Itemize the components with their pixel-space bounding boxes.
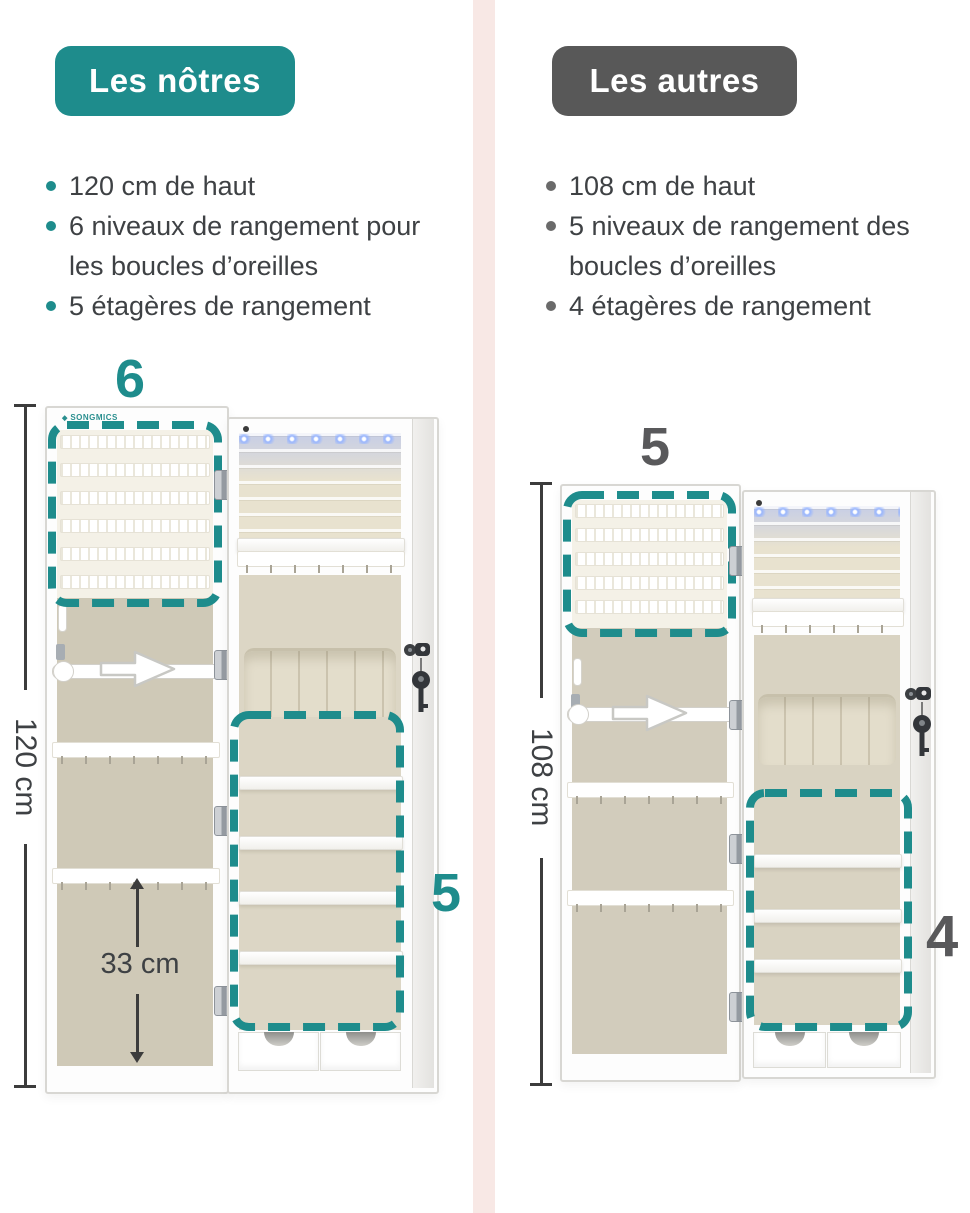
ours-inner-height-label: 33 cm <box>88 948 192 981</box>
others-badge: Les autres <box>552 46 797 116</box>
necklace-hook-bar <box>52 742 220 758</box>
storage-shelf <box>752 598 904 612</box>
hooks <box>576 904 725 912</box>
spec-text: 4 étagères de rangement <box>569 286 871 326</box>
drawer-handle <box>849 1032 879 1046</box>
list-item: 120 cm de haut <box>46 166 443 206</box>
others-earring-levels-count: 5 <box>640 420 670 474</box>
dashed-highlight-earring-levels <box>562 490 737 638</box>
ours-spec-list: 120 cm de haut 6 niveaux de rangement po… <box>46 166 443 326</box>
ours-badge-label: Les nôtres <box>89 62 261 100</box>
ours-earring-levels-count: 6 <box>115 352 145 406</box>
hooks <box>61 756 211 764</box>
list-item: 5 niveaux de rangement des boucles d’ore… <box>546 206 943 286</box>
storage-pouch <box>244 648 396 717</box>
door-latch <box>58 604 67 632</box>
necklace-hook-bar <box>752 611 904 627</box>
dashed-highlight-earring-levels <box>47 420 223 608</box>
comparison-infographic: Les nôtres 120 cm de haut 6 niveaux de r… <box>0 0 970 1213</box>
dimension-cap <box>530 1083 552 1086</box>
storage-pouch <box>758 694 896 765</box>
spec-text: 5 étagères de rangement <box>69 286 371 326</box>
ours-height-label: 120 cm <box>2 692 48 842</box>
cabinet-side-edge <box>412 419 434 1088</box>
arrow-down-icon <box>130 1052 144 1063</box>
dashed-highlight-shelves <box>745 788 913 1032</box>
others-spec-list: 108 cm de haut 5 niveaux de rangement de… <box>546 166 943 326</box>
spec-text: 120 cm de haut <box>69 166 255 206</box>
hooks <box>246 565 396 573</box>
lock-and-keys-icon <box>903 682 939 770</box>
door-lock <box>56 644 65 660</box>
dimension-cap <box>14 1085 36 1088</box>
dimension-line <box>24 844 27 1085</box>
drawer <box>320 1032 401 1071</box>
spec-text: 108 cm de haut <box>569 166 755 206</box>
led-strip <box>754 507 900 517</box>
storage-shelf <box>237 538 405 552</box>
necklace-hook-bar <box>237 551 405 567</box>
bullet-dot <box>546 181 556 191</box>
center-divider <box>473 0 495 1213</box>
inner-dimension-line <box>136 889 139 947</box>
list-item: 108 cm de haut <box>546 166 943 206</box>
list-item: 6 niveaux de rangement pour les boucles … <box>46 206 443 286</box>
power-button <box>243 426 249 432</box>
bullet-dot <box>46 221 56 231</box>
others-shelves-count: 4 <box>926 908 958 966</box>
rod-end-cap <box>568 704 589 725</box>
bullet-dot <box>546 301 556 311</box>
drawer-handle <box>264 1032 294 1046</box>
door-swing-arrow-icon <box>610 692 690 734</box>
dimension-line <box>540 858 543 1083</box>
drawer-handle <box>775 1032 805 1046</box>
spec-text: 6 niveaux de rangement pour les boucles … <box>69 206 443 286</box>
bullet-dot <box>46 301 56 311</box>
bullet-dot <box>546 221 556 231</box>
hooks <box>761 625 895 633</box>
hooks <box>576 796 725 804</box>
drawer <box>753 1032 826 1068</box>
ours-shelves-count: 5 <box>431 866 461 920</box>
dimension-line <box>540 485 543 698</box>
ours-badge: Les nôtres <box>55 46 295 116</box>
ring-storage-rows <box>239 433 401 538</box>
bullet-dot <box>46 181 56 191</box>
list-item: 4 étagères de rangement <box>546 286 943 326</box>
dimension-line <box>24 407 27 690</box>
necklace-hook-bar <box>567 890 734 906</box>
spec-text: 5 niveaux de rangement des boucles d’ore… <box>569 206 943 286</box>
drawer <box>827 1032 901 1068</box>
dashed-highlight-shelves <box>229 710 405 1032</box>
arrow-up-icon <box>130 878 144 889</box>
led-strip <box>239 434 401 444</box>
necklace-hook-bar <box>567 782 734 798</box>
others-badge-label: Les autres <box>589 62 759 100</box>
cabinet-side-edge <box>910 492 931 1073</box>
door-swing-arrow-icon <box>98 648 178 690</box>
lock-and-keys-icon <box>402 638 438 726</box>
drawer-handle <box>346 1032 376 1046</box>
others-height-label: 108 cm <box>518 700 564 854</box>
drawer <box>238 1032 319 1071</box>
door-latch <box>573 658 582 686</box>
ring-storage-rows <box>754 506 900 598</box>
rod-end-cap <box>53 661 74 682</box>
inner-dimension-line <box>136 994 139 1052</box>
list-item: 5 étagères de rangement <box>46 286 443 326</box>
